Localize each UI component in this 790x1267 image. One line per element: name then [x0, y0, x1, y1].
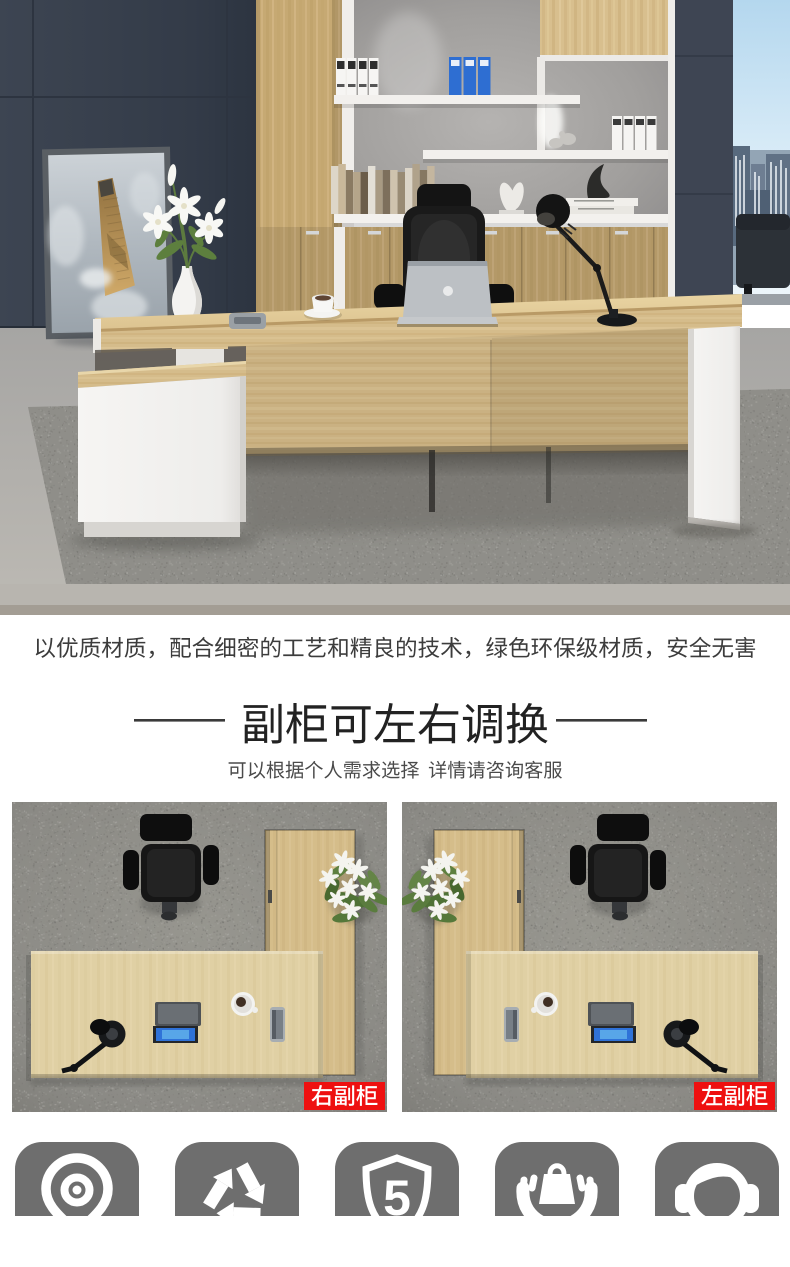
svg-text:5: 5 [383, 1170, 411, 1216]
